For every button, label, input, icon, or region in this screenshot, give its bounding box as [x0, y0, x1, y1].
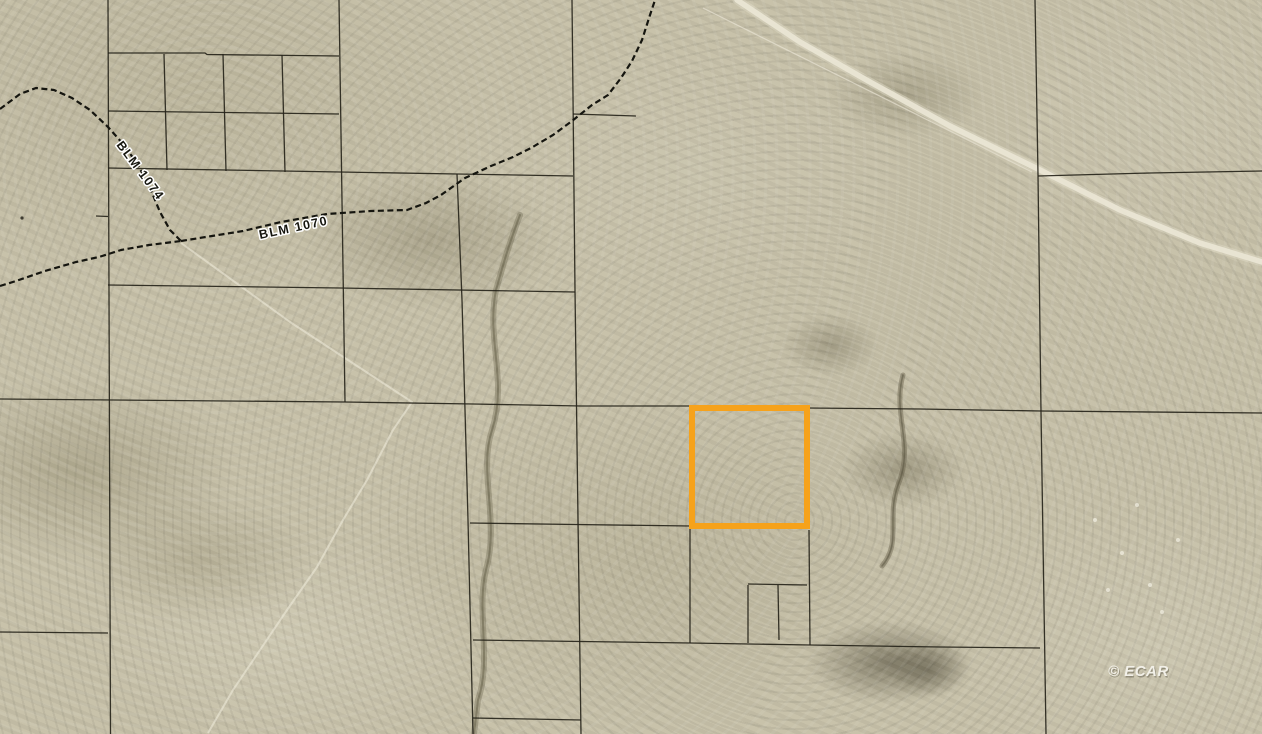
vegetation-speck [1120, 551, 1124, 555]
shrub-dot [20, 216, 23, 219]
vegetation-speck [1135, 503, 1139, 507]
vegetation-speck [1160, 610, 1164, 614]
parcel-boundary-line [473, 640, 1040, 648]
parcel-boundary-line [470, 523, 690, 526]
map-annotation-layer: BLM 1074 BLM 1070 © ECAR © ECAR [0, 0, 1262, 734]
vegetation-speck [1176, 538, 1180, 542]
parcel-boundary-line [572, 0, 581, 734]
dirt-track [181, 243, 412, 733]
parcel-boundary-line [573, 114, 636, 116]
gravel-road-shoulder [737, 0, 1262, 262]
parcel-boundary-line [473, 718, 581, 720]
blm-1070-road-east [181, 0, 655, 241]
parcel-boundary-line [96, 216, 108, 217]
parcel-boundary-line [108, 285, 575, 292]
parcel-boundary-line [0, 399, 1262, 413]
gravel-road-fence-track [703, 8, 1032, 172]
parcel-boundary-line [1038, 171, 1262, 176]
parcel-boundary-line [457, 174, 473, 734]
vegetation-speck [1148, 583, 1152, 587]
parcel-boundary-line [809, 530, 810, 645]
drainage-wash [474, 215, 520, 734]
parcel-boundary-line [339, 0, 345, 402]
parcel-highlight-box [692, 408, 807, 526]
parcel-boundary-line [0, 632, 108, 633]
gravel-road-group [703, 0, 1262, 262]
parcel-boundary-line [108, 111, 339, 114]
road-label-blm-1074: BLM 1074 [114, 138, 168, 203]
parcel-boundaries [0, 0, 1262, 734]
blm-roads [0, 0, 655, 286]
blm-1070-road-west [0, 241, 181, 286]
parcel-boundary-line [1035, 0, 1046, 734]
vegetation-specks [20, 216, 1180, 614]
vegetation-speck [1106, 588, 1110, 592]
ecar-watermark: © ECAR [1108, 663, 1169, 680]
parcel-boundary-line [108, 0, 111, 734]
aerial-parcel-map: BLM 1074 BLM 1070 © ECAR © ECAR [0, 0, 1262, 734]
vegetation-speck [1093, 518, 1097, 522]
parcel-boundary-line [748, 584, 807, 585]
parcel-boundary-line [108, 168, 573, 176]
parcel-boundary-line [778, 585, 779, 640]
road-label-blm-1070: BLM 1070 [258, 214, 330, 242]
gravel-road [737, 0, 1262, 262]
